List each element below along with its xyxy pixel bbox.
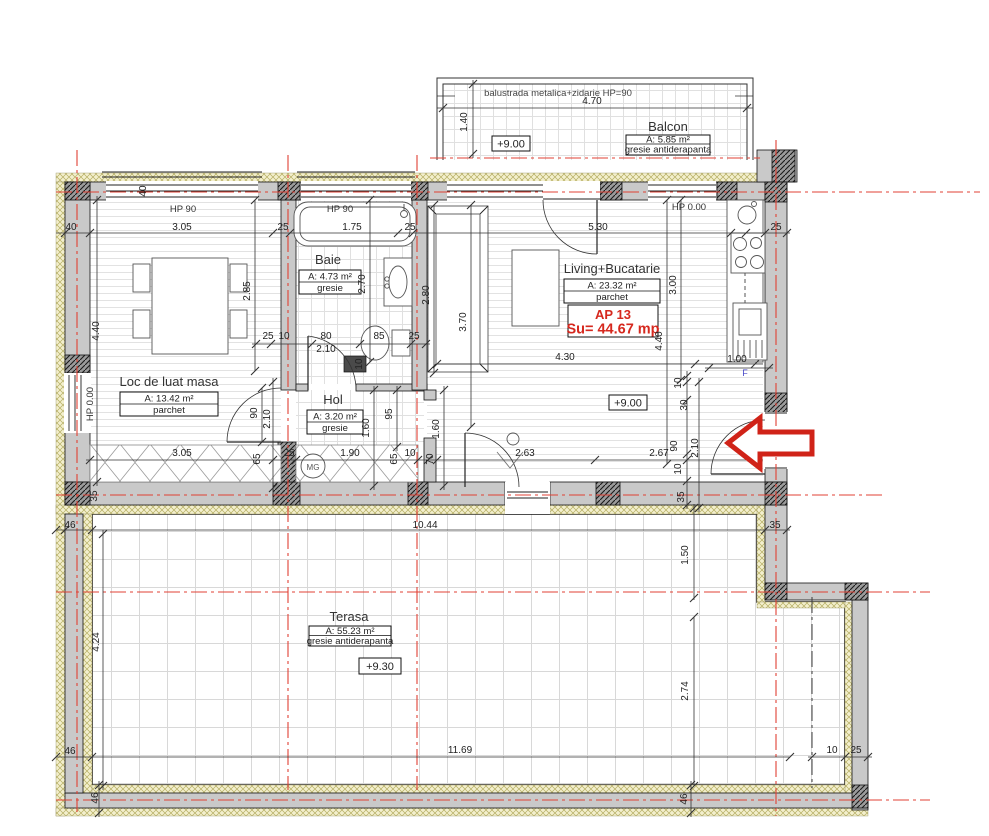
dim-label: 95 [384,408,395,420]
dim-label: 90 [669,440,680,452]
dim-label: 10 [673,463,684,475]
dim-label: 10 [673,377,684,389]
dim-label: 46 [679,793,690,805]
kitchen-sink [738,206,756,224]
dim-label: 4.40 [91,321,102,341]
dim-label: 2.10 [262,409,273,429]
kitchen-counter [727,200,767,362]
dim-label: 10 [354,358,365,370]
gas-meter: MG [301,454,325,478]
room-finish-hol: gresie [322,423,348,434]
room-title-balcon: Balcon [648,119,688,134]
bathroom-sink [384,258,412,306]
level-living: +9.00 [614,398,642,410]
level-balcon: +9.00 [497,139,525,151]
dim-label: 25 [262,331,274,342]
dim-label: 65 [389,453,400,465]
room-finish-terasa: gresie antiderapanta [307,636,394,647]
floor-plan-page: MG [0,0,989,836]
chair [133,264,150,292]
dim-label: 35 [89,490,100,502]
gas-meter-label: MG [307,463,320,472]
fridge-label: F [742,368,748,378]
balustrade-note: balustrada metalica+zidarie HP=90 [484,88,632,99]
sofa [428,206,488,372]
balcony-door-opening [543,181,600,201]
room-title-dining: Loc de luat masa [119,374,219,389]
dim-label: 2.80 [421,285,432,305]
room-area-hol: A: 3.20 m² [313,412,357,423]
room-title-terasa: Terasa [329,609,369,624]
apartment-surface: Su= 44.67 mp [566,322,659,338]
room-finish-living: parchet [596,292,628,303]
stove [731,233,765,273]
hp-marker: HP 0.00 [672,202,706,213]
dim-label: 4.30 [555,352,575,363]
dim-label: 4.70 [582,96,602,107]
chair [133,310,150,338]
dim-label: 35 [676,491,687,503]
dim-label: 1.75 [342,222,362,233]
hp-marker: HP 90 [170,204,196,215]
dim-label: 46 [90,792,101,804]
dim-label: 4.40 [654,331,665,351]
dim-label: 2.70 [357,274,368,294]
room-finish-dining: parchet [153,405,185,416]
dim-label: 10.44 [412,520,437,531]
hp-marker: HP 0.00 [85,387,96,421]
dim-label: 5.30 [588,222,608,233]
dim-label: 1.60 [431,419,442,439]
apartment-code: AP 13 [595,307,631,322]
dim-label: 1.60 [361,418,372,438]
fridge [733,303,767,360]
level-terasa: +9.30 [366,661,394,673]
dining-table [152,258,228,354]
toilet [361,326,410,360]
dim-label: 4.24 [91,632,102,652]
dim-label: 1.50 [680,545,691,565]
dim-label: 46 [64,746,76,757]
dim-label: 85 [373,331,385,342]
room-area-dining: A: 13.42 m² [144,394,193,405]
dim-label: 65 [252,453,263,465]
room-area-living: A: 23.32 m² [587,281,636,292]
dim-label: 2.74 [680,681,691,701]
dim-label: 46 [64,520,76,531]
dim-label: 3.05 [172,222,192,233]
dim-label: 35 [769,520,781,531]
dim-label: 1.90 [340,448,360,459]
dim-label: 30 [679,399,690,411]
dim-label: 1.40 [459,112,470,132]
dim-label: 3.70 [458,312,469,332]
dim-label: 25 [770,222,782,233]
dim-label: 25 [404,222,416,233]
dim-label: 40 [65,222,77,233]
dim-label: 70 [425,453,436,465]
coffee-table [512,250,559,326]
dim-label: 25 [283,448,295,459]
dim-label: 90 [249,407,260,419]
dim-label: 25 [277,222,289,233]
dim-label: 25 [408,331,420,342]
dim-label: 3.00 [668,275,679,295]
room-title-baie: Baie [315,252,341,267]
dim-label: 80 [320,331,332,342]
dim-label: 10 [404,448,416,459]
hp-marker: HP 90 [327,204,353,215]
dim-label: 10 [278,331,290,342]
room-finish-baie: gresie [317,283,343,294]
dim-label: 3.05 [172,448,192,459]
dim-label: 10 [826,745,838,756]
floor-plan-drawing: MG [0,0,989,836]
room-area-baie: A: 4.73 m² [308,272,352,283]
dim-label: 25 [850,745,862,756]
dim-label: 40 [138,185,149,197]
dim-label: 2.10 [316,344,336,355]
dim-label: 1.00 [727,354,747,365]
dim-label: 2.85 [242,281,253,301]
dim-label: 2.63 [515,448,535,459]
room-title-living: Living+Bucatarie [564,261,660,276]
dim-label: 11.69 [448,745,473,756]
chair [230,310,247,338]
dim-label: 2.67 [649,448,669,459]
dim-label: 2.10 [690,438,701,458]
room-title-hol: Hol [323,392,343,407]
room-finish-balcon: gresie antiderapanta [625,145,712,156]
